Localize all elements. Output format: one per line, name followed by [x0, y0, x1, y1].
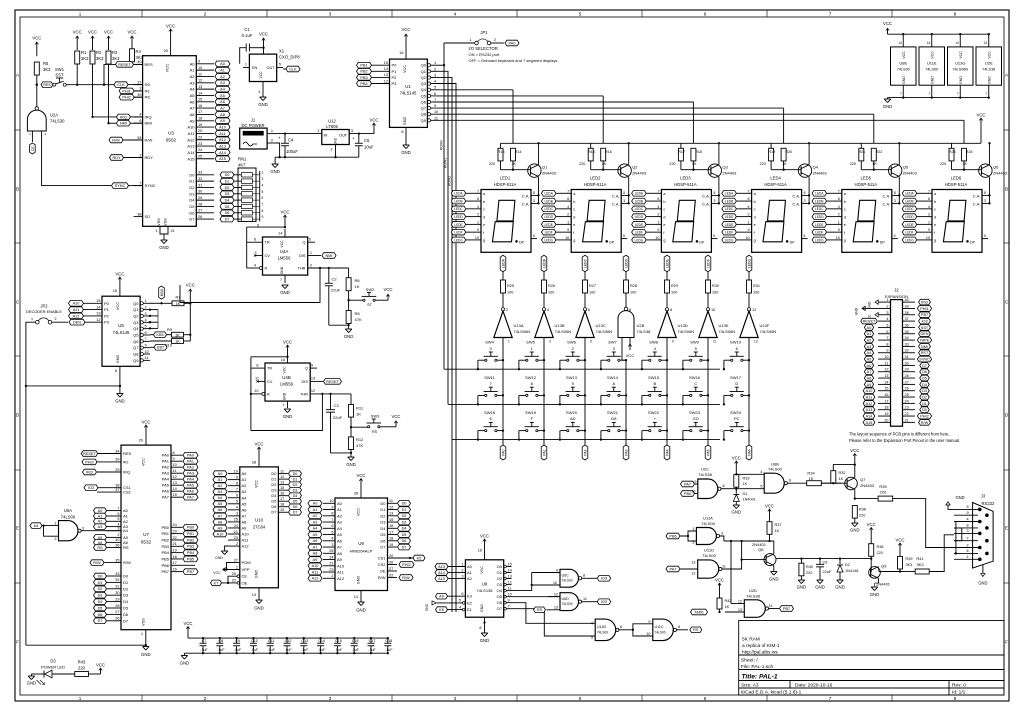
- svg-text:27C64: 27C64: [253, 525, 266, 530]
- svg-text:A8: A8: [337, 551, 343, 556]
- svg-text:SYNC: SYNC: [145, 183, 156, 188]
- svg-text:9: 9: [198, 60, 200, 64]
- svg-text:VCC: VCC: [357, 508, 361, 516]
- svg-text:100uF: 100uF: [286, 149, 298, 154]
- svg-text:4: 4: [748, 205, 750, 209]
- svg-text:D7: D7: [271, 510, 277, 515]
- svg-text:5: 5: [145, 324, 147, 328]
- svg-text:2N4403: 2N4403: [722, 171, 737, 176]
- svg-text:1: 1: [657, 220, 659, 224]
- svg-text:7: 7: [957, 92, 959, 96]
- svg-text:1N4001: 1N4001: [743, 498, 756, 502]
- svg-text:TAPE: TAPE: [920, 338, 930, 342]
- svg-text:E3: E3: [467, 594, 473, 599]
- svg-text:220: 220: [78, 666, 86, 671]
- svg-text:7: 7: [236, 488, 238, 492]
- svg-text:B: B: [16, 187, 19, 192]
- svg-text:R/W: R/W: [921, 421, 929, 425]
- svg-text:6: 6: [254, 238, 256, 242]
- svg-text:VCC: VCC: [186, 283, 195, 288]
- svg-text:17: 17: [280, 497, 284, 501]
- svg-text:16: 16: [280, 491, 284, 495]
- svg-text:1K: 1K: [356, 412, 361, 417]
- svg-text:U12: U12: [328, 119, 336, 124]
- svg-text:Φ0: Φ0: [145, 82, 151, 87]
- svg-text:GND: GND: [403, 117, 407, 126]
- svg-text:D3: D3: [189, 191, 195, 196]
- svg-text:D5: D5: [293, 500, 298, 504]
- svg-text:VCC: VCC: [283, 339, 292, 344]
- svg-text:3: 3: [549, 340, 551, 344]
- svg-text:HDSP-511A: HDSP-511A: [584, 182, 607, 187]
- svg-text:4: 4: [591, 622, 593, 626]
- svg-text:Q6: Q6: [133, 339, 139, 344]
- svg-text:20: 20: [232, 572, 236, 576]
- svg-text:CV: CV: [265, 253, 271, 258]
- svg-text:8: 8: [533, 191, 535, 195]
- svg-text:LED2: LED2: [590, 176, 601, 181]
- svg-text:VCC: VCC: [480, 566, 484, 574]
- svg-text:A4: A4: [123, 528, 129, 533]
- svg-text:A9: A9: [313, 558, 318, 562]
- svg-text:E: E: [1005, 526, 1008, 531]
- svg-text:D3: D3: [271, 488, 277, 493]
- svg-text:D5: D5: [271, 499, 277, 504]
- svg-text:1: 1: [508, 340, 510, 344]
- svg-text:8: 8: [966, 524, 968, 528]
- svg-text:LEDF: LEDF: [635, 231, 643, 235]
- svg-text:Q6: Q6: [421, 99, 427, 104]
- svg-text:20: 20: [198, 129, 202, 133]
- svg-text:Q9: Q9: [421, 118, 427, 123]
- svg-text:PHI2: PHI2: [122, 96, 130, 100]
- svg-text:4: 4: [477, 205, 479, 209]
- svg-text:28: 28: [354, 492, 358, 496]
- svg-text:27: 27: [234, 558, 238, 562]
- svg-text:5: 5: [590, 340, 592, 344]
- svg-text:DIS: DIS: [299, 253, 306, 258]
- svg-text:HDSP-511A: HDSP-511A: [494, 182, 517, 187]
- svg-text:13: 13: [389, 512, 393, 516]
- svg-text:PA7: PA7: [670, 567, 677, 571]
- svg-text:LED6: LED6: [951, 176, 962, 181]
- svg-text:C18: C18: [385, 639, 392, 643]
- svg-text:C.A.: C.A.: [702, 201, 710, 206]
- svg-text:D6: D6: [189, 210, 195, 215]
- svg-text:A5: A5: [190, 93, 196, 98]
- svg-text:LEDG: LEDG: [454, 238, 463, 242]
- svg-text:JP1: JP1: [480, 30, 488, 35]
- svg-text:220: 220: [850, 162, 856, 166]
- svg-text:RN1: RN1: [238, 157, 247, 162]
- svg-text:15: 15: [280, 486, 284, 490]
- svg-text:74LS00: 74LS00: [655, 631, 666, 635]
- svg-text:GND: GND: [258, 102, 268, 107]
- svg-text:2: 2: [204, 12, 207, 17]
- svg-text:29: 29: [115, 597, 119, 601]
- svg-text:74LS00: 74LS00: [702, 553, 717, 558]
- svg-text:Q3: Q3: [133, 320, 139, 325]
- svg-text:SW1: SW1: [55, 67, 65, 72]
- svg-text:14: 14: [884, 380, 888, 384]
- svg-text:3K3: 3K3: [916, 562, 924, 567]
- svg-text:D6: D6: [225, 211, 230, 215]
- svg-text:1: 1: [692, 527, 694, 531]
- svg-text:LEDB: LEDB: [635, 199, 643, 203]
- svg-text:2: 2: [506, 308, 508, 312]
- svg-text:C.A.: C.A.: [522, 201, 530, 206]
- svg-text:6502: 6502: [166, 138, 177, 143]
- svg-text:PB2: PB2: [360, 70, 367, 74]
- svg-text:5: 5: [966, 505, 968, 509]
- svg-text:LEDE: LEDE: [815, 223, 823, 227]
- svg-text:28: 28: [252, 461, 256, 465]
- svg-text:D0: D0: [123, 574, 129, 579]
- svg-text:D7: D7: [189, 217, 195, 222]
- svg-text:LEDG: LEDG: [905, 238, 914, 242]
- svg-text:22: 22: [232, 579, 236, 583]
- svg-text:2: 2: [145, 305, 147, 309]
- svg-text:Sheet: /: Sheet: /: [741, 658, 758, 664]
- svg-text:U11C: U11C: [655, 625, 664, 629]
- svg-text:1: 1: [886, 298, 888, 302]
- svg-text:SST: SST: [921, 326, 929, 330]
- svg-text:A6: A6: [190, 99, 196, 104]
- svg-text:GND: GND: [883, 104, 893, 109]
- svg-text:D1: D1: [225, 180, 230, 184]
- svg-text:D2: D2: [225, 186, 230, 190]
- svg-text:F: F: [1005, 640, 1008, 645]
- svg-text:Rev: 0: Rev: 0: [952, 682, 966, 688]
- svg-text:A7: A7: [313, 545, 318, 549]
- svg-text:TR: TR: [265, 240, 270, 245]
- svg-text:25: 25: [115, 468, 119, 472]
- svg-text:GND: GND: [346, 462, 356, 467]
- svg-text:31: 31: [905, 355, 909, 359]
- svg-text:9: 9: [966, 511, 968, 515]
- svg-text:16: 16: [884, 393, 888, 397]
- svg-text:C7: C7: [202, 639, 207, 643]
- svg-text:O3: O3: [497, 582, 503, 587]
- svg-text:12: 12: [752, 308, 756, 312]
- svg-text:PA2: PA2: [583, 449, 587, 455]
- svg-text:LEDG: LEDG: [544, 238, 553, 242]
- svg-text:LED5: LED5: [861, 176, 872, 181]
- svg-text:U9: U9: [358, 541, 364, 546]
- svg-text:The layout sequence of PCB pin: The layout sequence of PCB pins is diffe…: [849, 432, 950, 437]
- svg-text:D2: D2: [98, 587, 103, 591]
- svg-text:LEDC: LEDC: [815, 207, 824, 211]
- svg-text:1: 1: [317, 129, 319, 133]
- svg-text:Φ2: Φ2: [145, 95, 151, 100]
- svg-text:LEDE: LEDE: [545, 223, 553, 227]
- svg-text:VCC: VCC: [383, 287, 392, 292]
- svg-text:D2: D2: [123, 586, 129, 591]
- svg-text:5: 5: [579, 12, 582, 17]
- svg-text:PA4: PA4: [665, 449, 669, 455]
- svg-text:F: F: [16, 640, 19, 645]
- svg-text:PB0: PB0: [187, 526, 194, 530]
- svg-text:39: 39: [905, 304, 909, 308]
- svg-text:A0: A0: [220, 62, 225, 66]
- svg-text:D1: D1: [123, 580, 129, 585]
- svg-text:R29: R29: [671, 284, 678, 288]
- svg-text:VCC: VCC: [166, 23, 175, 28]
- svg-text:VCC: VCC: [959, 51, 963, 59]
- svg-text:E: E: [16, 526, 19, 531]
- svg-text:D0: D0: [402, 502, 407, 506]
- svg-text:2: 2: [434, 67, 436, 71]
- svg-text:Q5: Q5: [421, 93, 427, 98]
- svg-text:9: 9: [657, 228, 659, 232]
- svg-text:PA0: PA0: [187, 454, 194, 458]
- svg-text:C.A.: C.A.: [612, 201, 620, 206]
- svg-text:11: 11: [508, 586, 512, 590]
- svg-text:DP: DP: [519, 240, 525, 244]
- svg-text:2: 2: [271, 139, 273, 143]
- svg-text:KB5: KB5: [156, 333, 163, 337]
- svg-text:A15: A15: [866, 421, 873, 425]
- svg-text:OFF = Onboard keyboard and 7 s: OFF = Onboard keyboard and 7 segment dis…: [469, 58, 558, 63]
- svg-text:C4: C4: [288, 138, 294, 143]
- svg-text:A3: A3: [313, 520, 318, 524]
- svg-text:8: 8: [984, 191, 986, 195]
- svg-text:100: 100: [671, 291, 677, 295]
- svg-text:IRQ: IRQ: [123, 470, 130, 475]
- svg-text:D0: D0: [380, 501, 386, 506]
- svg-text:7: 7: [117, 506, 119, 510]
- svg-text:d: d: [934, 215, 936, 219]
- svg-text:GND: GND: [334, 137, 338, 145]
- svg-text:A15: A15: [219, 157, 226, 161]
- svg-text:D1: D1: [922, 402, 927, 406]
- svg-text:2: 2: [236, 542, 238, 546]
- svg-text:8: 8: [583, 574, 585, 578]
- svg-text:A4: A4: [337, 526, 343, 531]
- svg-text:P2: P2: [392, 75, 398, 80]
- svg-text:D2: D2: [922, 395, 927, 399]
- svg-text:A9: A9: [218, 526, 223, 530]
- svg-text:A7: A7: [220, 107, 225, 111]
- svg-text:.1uF: .1uF: [217, 648, 225, 652]
- svg-text:PB7: PB7: [161, 569, 169, 574]
- svg-text:PA5: PA5: [162, 483, 170, 488]
- svg-text:5: 5: [894, 234, 896, 238]
- svg-text:11: 11: [769, 604, 773, 608]
- svg-text:74LS06N: 74LS06N: [719, 329, 736, 334]
- svg-text:74LS145: 74LS145: [113, 330, 130, 335]
- svg-text:9: 9: [838, 228, 840, 232]
- svg-text:VCC: VCC: [626, 353, 635, 358]
- svg-text:File: PAL-1.sch: File: PAL-1.sch: [741, 664, 774, 670]
- svg-text:Q5: Q5: [133, 333, 139, 338]
- svg-text:GND: GND: [356, 608, 366, 613]
- svg-text:O2: O2: [497, 576, 503, 581]
- svg-text:13: 13: [311, 377, 315, 381]
- svg-text:ROW0: ROW0: [440, 140, 444, 150]
- svg-text:VCC: VCC: [259, 32, 268, 37]
- svg-text:11: 11: [280, 469, 284, 473]
- svg-text:Q2: Q2: [421, 75, 427, 80]
- svg-text:A4: A4: [218, 496, 223, 500]
- svg-text:9: 9: [694, 480, 696, 484]
- svg-text:6: 6: [145, 331, 147, 335]
- svg-text:12: 12: [884, 368, 888, 372]
- svg-text:A6: A6: [218, 508, 223, 512]
- svg-text:LEDE: LEDE: [454, 223, 462, 227]
- svg-text:C.A.: C.A.: [973, 193, 981, 198]
- svg-text:RES: RES: [145, 62, 154, 67]
- svg-text:A13: A13: [438, 565, 445, 569]
- svg-text:A0: A0: [98, 509, 103, 513]
- svg-text:PHI1: PHI1: [920, 307, 928, 311]
- svg-text:PHI2: PHI2: [85, 460, 93, 464]
- svg-text:U6C: U6C: [562, 574, 570, 578]
- svg-text:VCC: VCC: [104, 30, 113, 35]
- svg-text:LEDA: LEDA: [905, 192, 914, 196]
- svg-text:A14: A14: [438, 571, 445, 575]
- svg-text:8: 8: [115, 369, 117, 373]
- svg-text:6: 6: [434, 92, 436, 96]
- svg-text:3: 3: [82, 527, 84, 531]
- svg-text:3K3: 3K3: [906, 563, 913, 567]
- svg-text:A9: A9: [220, 119, 225, 123]
- svg-text:GND: GND: [850, 528, 860, 533]
- svg-text:CLK: CLK: [117, 83, 125, 87]
- svg-text:LEDA: LEDA: [545, 192, 554, 196]
- svg-text:D2: D2: [189, 185, 195, 190]
- svg-text:g: g: [754, 239, 756, 243]
- svg-text:37: 37: [115, 488, 119, 492]
- svg-text:A9: A9: [439, 595, 444, 599]
- svg-text:b: b: [934, 200, 936, 204]
- svg-text:R20: R20: [785, 150, 792, 154]
- svg-text:GND: GND: [959, 76, 963, 84]
- svg-text:D4: D4: [380, 526, 386, 531]
- svg-text:D0: D0: [189, 172, 195, 177]
- svg-text:ROW1: ROW1: [444, 158, 448, 168]
- svg-text:32: 32: [198, 177, 202, 181]
- svg-text:GND: GND: [815, 585, 825, 590]
- svg-text:33: 33: [198, 171, 202, 175]
- svg-text:DC POWER: DC POWER: [241, 123, 264, 128]
- svg-text:A4: A4: [313, 527, 318, 531]
- svg-text:U6D: U6D: [562, 597, 570, 601]
- svg-text:D3: D3: [922, 389, 927, 393]
- svg-text:A2: A2: [242, 483, 248, 488]
- svg-text:D5: D5: [380, 532, 386, 537]
- svg-text:GO: GO: [693, 416, 699, 421]
- svg-text:LEDB: LEDB: [545, 199, 553, 203]
- svg-text:21: 21: [905, 418, 909, 422]
- svg-text:e: e: [663, 223, 665, 227]
- svg-text:VCC: VCC: [883, 21, 892, 26]
- svg-text:CE: CE: [242, 574, 248, 579]
- svg-text:10: 10: [836, 236, 840, 240]
- svg-text:13: 13: [884, 374, 888, 378]
- svg-text:23: 23: [234, 536, 238, 540]
- svg-text:LEDB: LEDB: [725, 199, 733, 203]
- svg-text:2: 2: [310, 263, 312, 267]
- svg-text:31: 31: [115, 585, 119, 589]
- svg-text:LT805: LT805: [326, 124, 338, 129]
- svg-text:A2: A2: [190, 74, 196, 79]
- svg-text:HDSP-511A: HDSP-511A: [945, 182, 968, 187]
- svg-text:b: b: [663, 200, 665, 204]
- svg-text:GND: GND: [180, 661, 190, 666]
- svg-text:20: 20: [389, 554, 393, 558]
- svg-text:100: 100: [548, 291, 554, 295]
- svg-text:LEDC: LEDC: [725, 207, 734, 211]
- svg-text:IO2: IO2: [88, 486, 94, 490]
- svg-text:VCC: VCC: [401, 27, 410, 32]
- svg-text:Φ1: Φ1: [145, 88, 151, 93]
- svg-text:Q1: Q1: [542, 165, 548, 170]
- svg-text:O5: O5: [497, 594, 503, 599]
- svg-text:GND: GND: [283, 414, 293, 419]
- svg-text:5: 5: [984, 234, 986, 238]
- svg-text:A1: A1: [123, 514, 129, 519]
- svg-text:28: 28: [115, 604, 119, 608]
- svg-text:25: 25: [329, 549, 333, 553]
- svg-text:3: 3: [329, 12, 332, 17]
- svg-text:CS2: CS2: [378, 562, 387, 567]
- svg-text:6: 6: [657, 197, 659, 201]
- svg-text:2: 2: [331, 574, 333, 578]
- svg-text:A1: A1: [220, 69, 225, 73]
- svg-text:PA6: PA6: [162, 489, 170, 494]
- svg-text:1: 1: [155, 229, 157, 233]
- svg-text:R27: R27: [589, 284, 596, 288]
- svg-text:U2D: U2D: [749, 588, 757, 593]
- svg-text:GND: GND: [141, 652, 151, 657]
- svg-text:A4: A4: [220, 88, 225, 92]
- svg-text:22uF: 22uF: [823, 570, 832, 574]
- svg-text:16: 16: [173, 567, 177, 571]
- svg-text:4K7: 4K7: [238, 163, 246, 168]
- svg-text:RS232: RS232: [982, 501, 995, 506]
- svg-text:VCC: VCC: [280, 240, 284, 248]
- svg-text:.1uF: .1uF: [234, 648, 242, 652]
- svg-text:d: d: [754, 215, 756, 219]
- svg-text:D6: D6: [922, 370, 927, 374]
- svg-text:GND: GND: [955, 495, 964, 500]
- svg-text:SW22: SW22: [648, 410, 660, 415]
- svg-text:D: D: [735, 381, 738, 386]
- svg-text:D7: D7: [98, 619, 103, 623]
- svg-text:11: 11: [885, 361, 889, 365]
- svg-text:R12: R12: [356, 437, 364, 442]
- svg-text:A3: A3: [218, 490, 223, 494]
- svg-text:D6: D6: [123, 612, 129, 617]
- svg-text:C13: C13: [301, 639, 308, 643]
- svg-text:PB0: PB0: [684, 492, 691, 496]
- svg-text:20: 20: [139, 439, 143, 443]
- svg-text:O6: O6: [497, 600, 503, 605]
- svg-text:VCC: VCC: [480, 533, 489, 538]
- svg-text:J2: J2: [894, 288, 899, 293]
- svg-text:4: 4: [760, 470, 762, 474]
- svg-text:U5: U5: [118, 323, 124, 328]
- svg-text:6: 6: [331, 524, 333, 528]
- svg-text:SW9: SW9: [690, 340, 699, 345]
- svg-text:D4: D4: [271, 493, 277, 498]
- svg-text:LEDG: LEDG: [815, 238, 824, 242]
- svg-text:OE: OE: [242, 580, 248, 585]
- svg-text:U10: U10: [255, 518, 264, 523]
- svg-text:6: 6: [748, 197, 750, 201]
- svg-text:VCC: VCC: [165, 64, 170, 73]
